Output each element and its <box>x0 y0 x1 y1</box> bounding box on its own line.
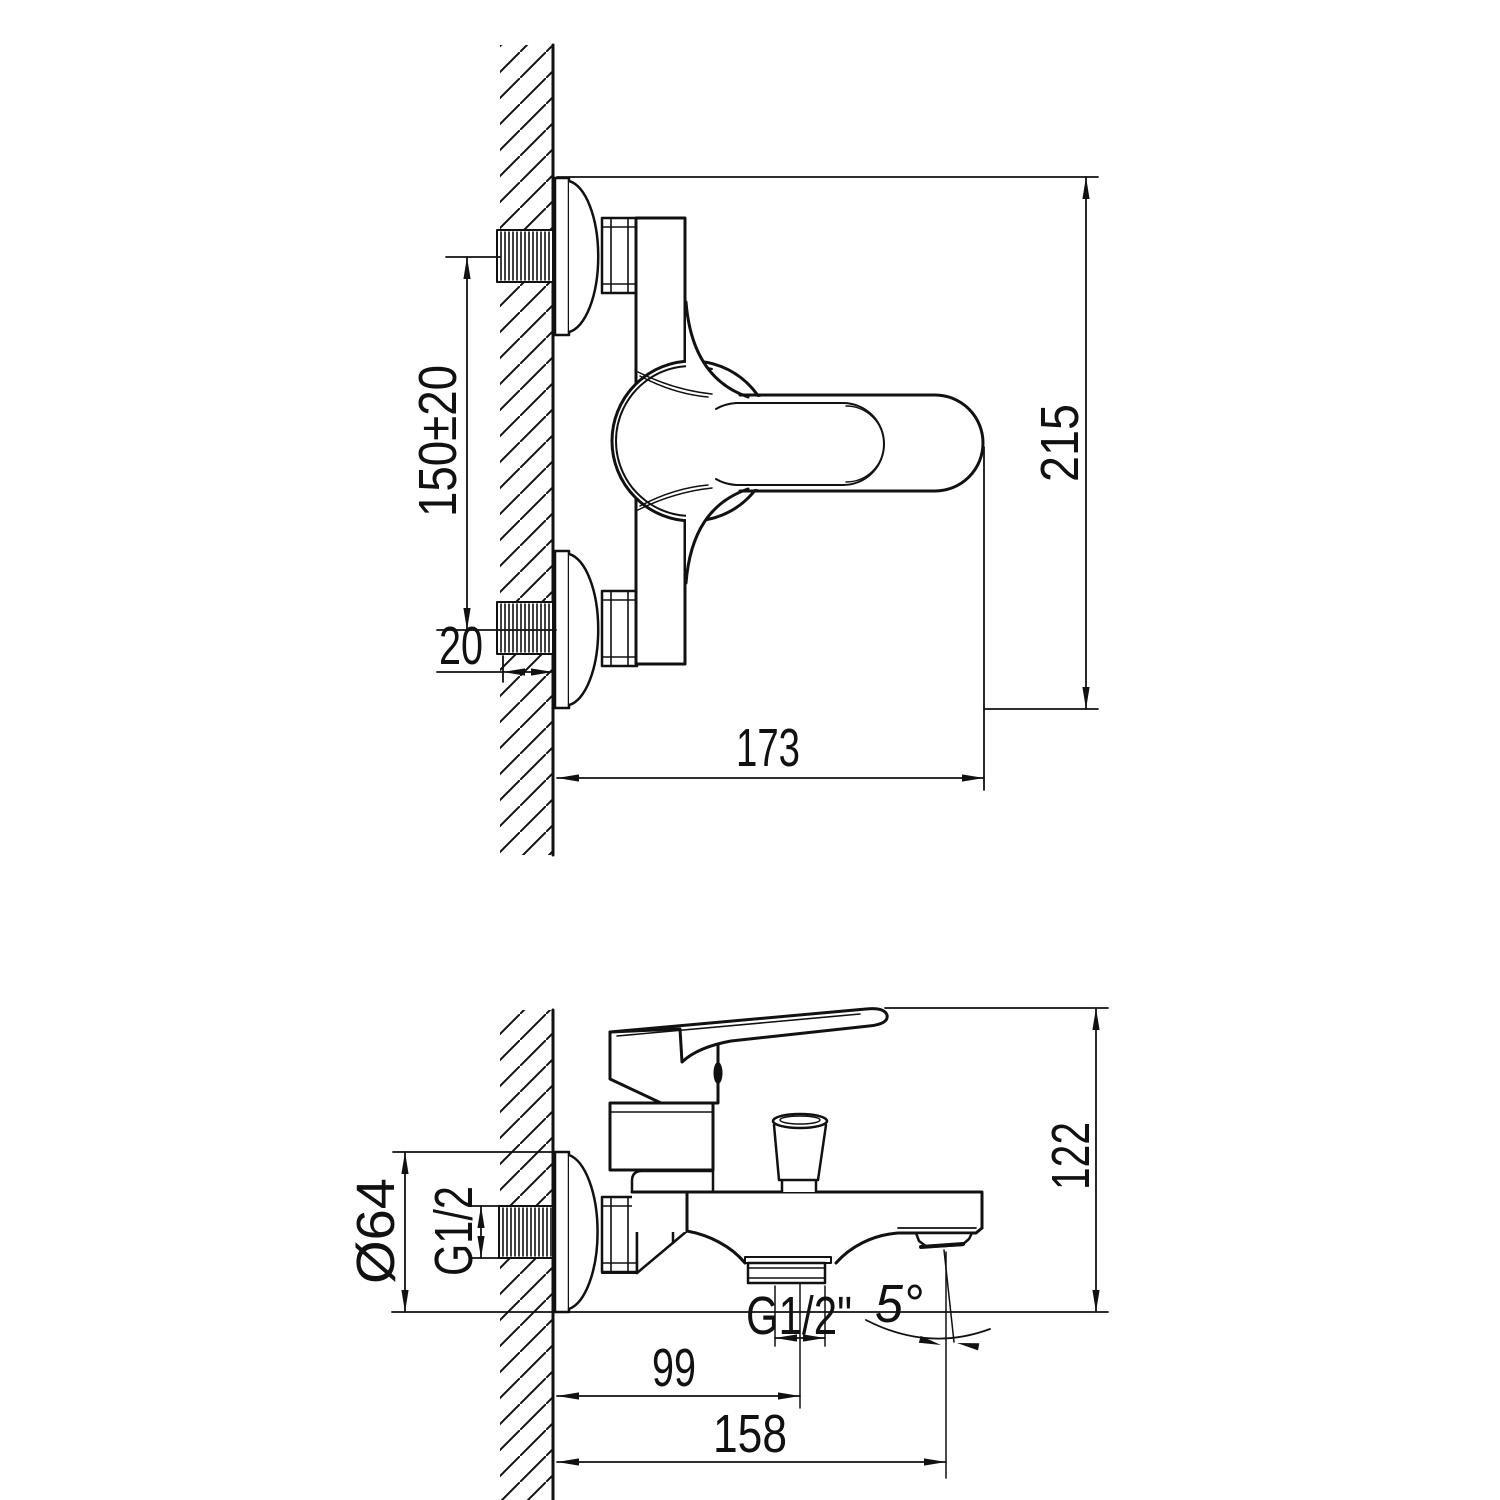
dim-label-outlet-thread: G1/2" <box>746 1286 852 1346</box>
thread-lines-bottom <box>501 604 549 652</box>
dim-label-spout-angle: 5° <box>875 1274 923 1334</box>
lever-screw-dot <box>714 1062 723 1084</box>
dim-label-diverter-offset: 99 <box>652 1338 696 1398</box>
wall-hatch-front <box>500 45 553 855</box>
inlet-connector-top <box>497 230 553 282</box>
inlet-connector-side <box>499 1206 553 1258</box>
dim-label-inlet-thread: G1/2 <box>424 1186 484 1276</box>
hex-nut-bottom-front <box>602 591 637 666</box>
dim-label-height-front: 215 <box>1030 404 1090 482</box>
diverter-knob-side <box>773 1114 827 1192</box>
dim-outlet-thread: G1/2" <box>746 1286 852 1346</box>
thread-lines-side <box>503 1208 551 1256</box>
thread-lines-top <box>501 232 549 280</box>
dim-label-mounting-centers: 150±20 <box>408 365 468 517</box>
dim-label-wall-depth: 20 <box>439 616 483 676</box>
hex-nut-side <box>602 1197 637 1273</box>
diverter-outlet-side <box>745 1257 831 1283</box>
body-neck-side <box>632 1171 713 1192</box>
dim-label-height-side: 122 <box>1041 1122 1101 1190</box>
inlet-connector-bottom <box>497 602 553 654</box>
technical-drawing-page: 150±20 20 173 215 <box>0 0 1500 1500</box>
wall-section-front <box>500 45 553 855</box>
aerator-side <box>916 1233 972 1247</box>
dim-label-width: 173 <box>736 718 800 778</box>
hex-nut-top-front <box>602 218 637 293</box>
faucet-dimension-drawing: 150±20 20 173 215 <box>0 0 1500 1500</box>
dim-label-escutcheon-diameter: Ø64 <box>346 1178 406 1284</box>
dim-label-spout-reach: 158 <box>713 1404 787 1464</box>
